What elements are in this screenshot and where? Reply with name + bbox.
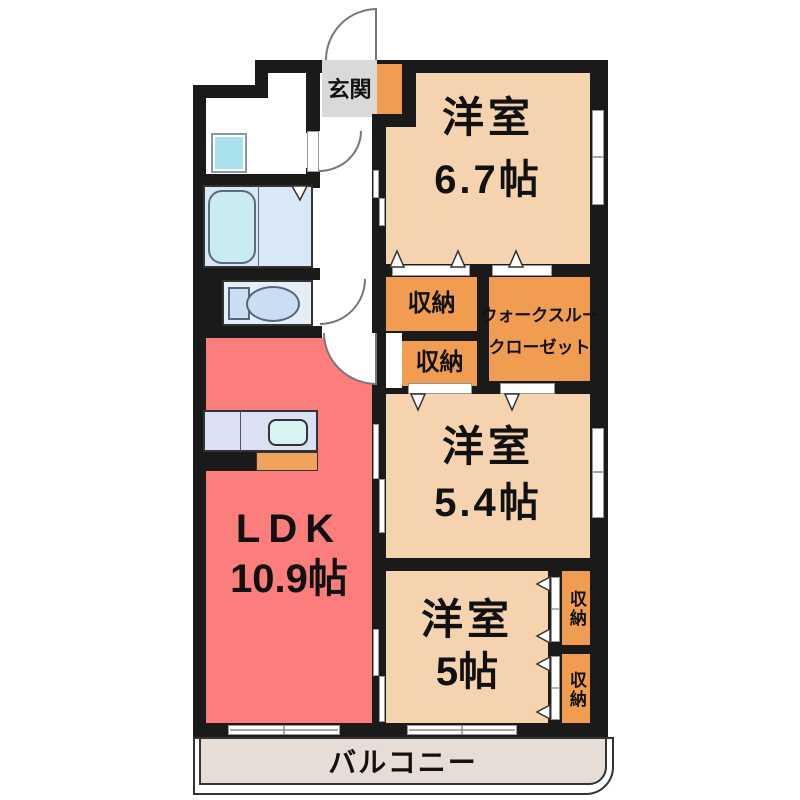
window-ldk-balcony: [228, 725, 340, 735]
wall-storage-right-divider: [562, 645, 590, 654]
bathroom-divider: [258, 186, 259, 267]
door-slot-closet-bottom: [500, 383, 555, 394]
storage-right-upper-label: 収納: [562, 580, 590, 638]
wall-top: [255, 60, 608, 73]
storage-right-lower-label: 収納: [562, 661, 590, 719]
kitchen-cabinet: [256, 452, 318, 471]
door-arc-washroom: [319, 131, 362, 172]
bedroom2-area: 5.4帖: [386, 480, 590, 526]
ldk-area: 10.9帖: [206, 556, 372, 602]
wall-toilet-left-block: [193, 268, 222, 328]
bedroom3-area: 5帖: [386, 649, 548, 695]
storage-top-label: 収納: [386, 289, 477, 319]
bedroom1-name: 洋室: [388, 95, 588, 141]
door-slot-closet-top: [492, 265, 552, 276]
door-leaf-washroom: [307, 131, 319, 172]
floor-plan-canvas: 玄関 洋室 6.7帖 収納 収納 ウォークスルー クローゼット LDK 10.9…: [0, 0, 800, 800]
slide-door-bedroom3-panel1: [373, 629, 379, 676]
walk-through-closet-line1: ウォークスルー: [489, 305, 590, 327]
bedroom3-name: 洋室: [386, 597, 548, 643]
bedroom2-name: 洋室: [386, 424, 590, 470]
window-bedroom2: [592, 428, 604, 518]
wall-ldk-top: [193, 326, 322, 338]
wall-bedroom2-bedroom3: [386, 558, 590, 571]
window-bedroom3-balcony: [407, 725, 517, 735]
kitchen-counter-divider: [240, 411, 241, 451]
kitchen-sink: [268, 419, 308, 446]
ldk-name: LDK: [206, 506, 372, 552]
storage-mid-label: 収納: [402, 348, 477, 378]
room-bedroom3: [386, 571, 548, 723]
bathtub: [208, 190, 256, 264]
slide-door-bedroom2-panel2: [379, 479, 385, 533]
door-arc-entrance: [325, 8, 377, 60]
slide-door-bedroom1-panel2: [379, 198, 385, 226]
kitchen-wall-block: [200, 452, 256, 471]
entrance-label: 玄関: [322, 75, 377, 105]
room-bedroom2: [386, 394, 590, 558]
bedroom1-area: 6.7帖: [388, 157, 588, 203]
washbasin: [211, 133, 247, 173]
toilet-bowl: [246, 286, 300, 322]
ldk-entry-gap: [386, 333, 402, 388]
balcony-label: バルコニー: [199, 746, 607, 780]
slide-door-bedroom2-panel1: [373, 424, 379, 479]
door-slot-storage-right-upper: [551, 577, 560, 642]
door-slot-storage-mid-bottom: [408, 383, 472, 394]
slide-door-bedroom1-panel1: [373, 170, 379, 198]
door-slot-storage-right-lower: [551, 656, 560, 720]
door-arc-toilet: [320, 279, 366, 325]
door-slot-storage-top: [392, 265, 470, 276]
wall-washroom-hall-upper: [306, 73, 320, 133]
slide-door-bedroom3-panel2: [379, 676, 385, 722]
walk-through-closet-line2: クローゼット: [489, 337, 590, 359]
room-walk-through-closet: [489, 277, 590, 381]
window-bedroom1: [592, 110, 604, 205]
